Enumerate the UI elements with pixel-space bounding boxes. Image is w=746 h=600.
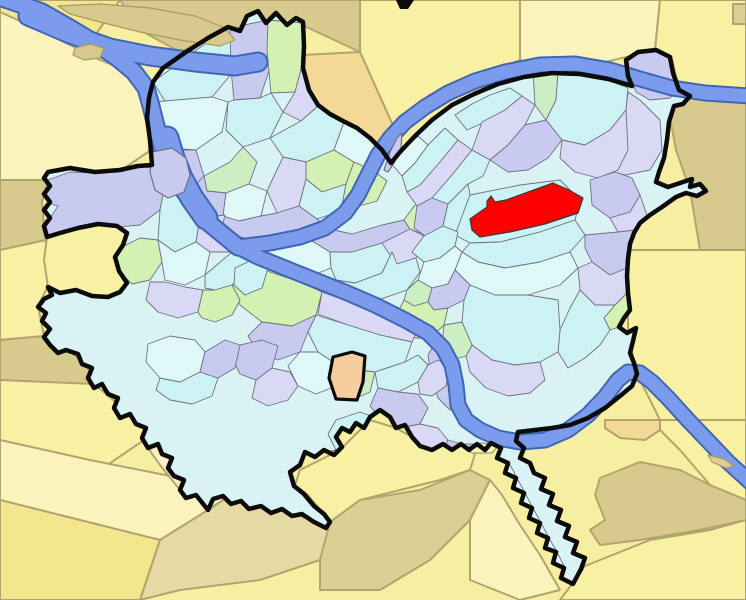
- municipality-polygon: [0, 240, 48, 340]
- map-viewport: [0, 0, 746, 600]
- municipality-polygon: [0, 180, 48, 250]
- enclave-borough-polygon: [329, 352, 365, 400]
- city-neighborhood-locator-map: [0, 0, 746, 600]
- municipality-polygon: [733, 4, 746, 24]
